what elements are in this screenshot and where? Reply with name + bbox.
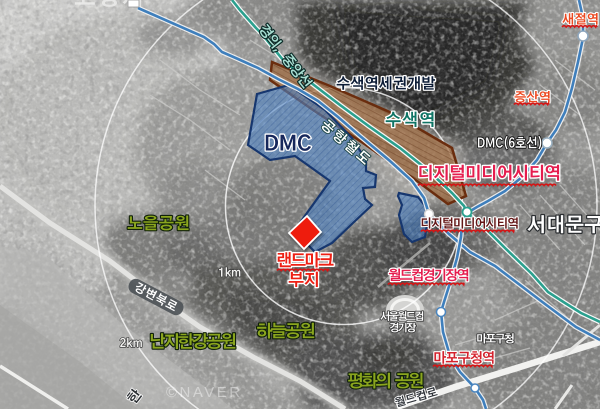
svg-text:©NAVER: ©NAVER	[166, 384, 243, 401]
